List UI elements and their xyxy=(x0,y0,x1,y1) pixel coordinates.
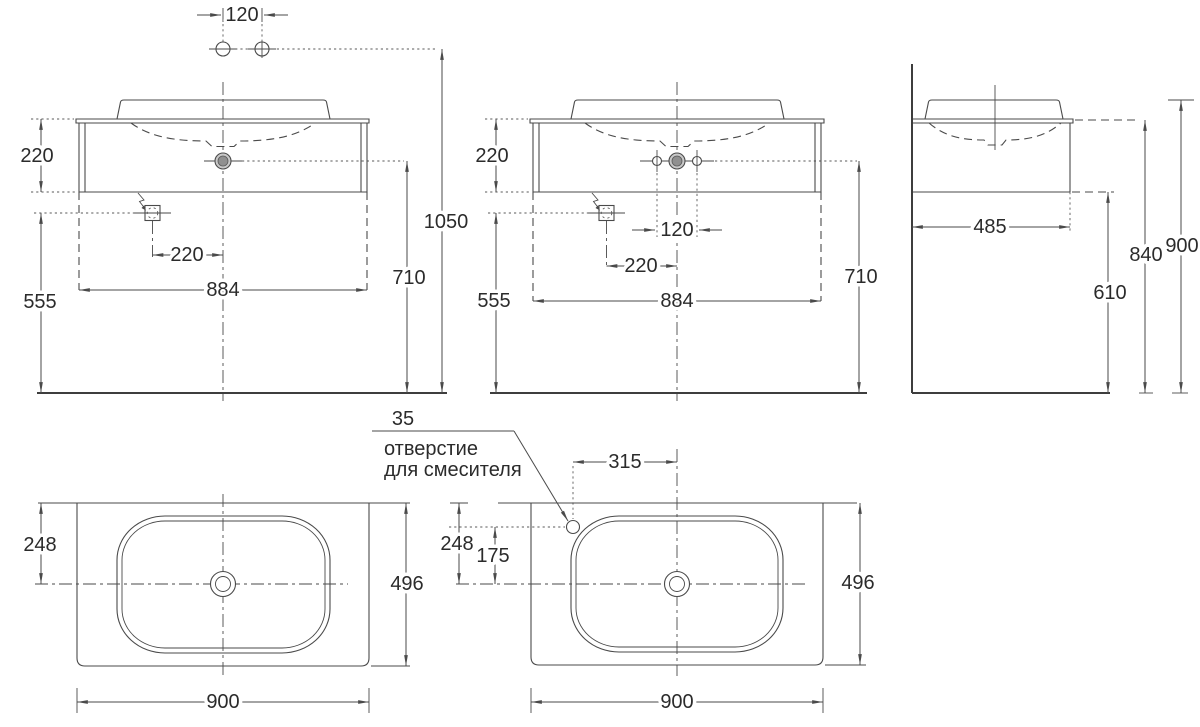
dim-depth: 496 xyxy=(390,573,423,595)
dim-underside-height: 610 xyxy=(1093,282,1126,304)
dim-faucet-setback: 175 xyxy=(476,545,509,567)
dim-outlet-to-floor: 555 xyxy=(477,290,510,312)
dim-width: 900 xyxy=(206,691,239,713)
dim-worktop-height: 840 xyxy=(1129,244,1162,266)
dim-faucet-hole-diameter: 35 xyxy=(392,408,414,430)
leader-arrow xyxy=(514,431,568,521)
front-view-left: 120 220 555 220 884 710 1050 xyxy=(20,4,468,401)
technical-drawing-canvas: 120 220 555 220 884 710 1050 xyxy=(0,0,1200,727)
plan-view-right: 35 отверстие для смесителя 315 248 175 4… xyxy=(372,408,875,713)
faucet-hole-note-line2: для смесителя xyxy=(384,459,522,481)
dim-drain-height: 710 xyxy=(392,267,425,289)
electrical-outlet-symbol xyxy=(588,193,625,221)
front-view-center: 220 555 120 220 884 710 xyxy=(475,82,877,401)
dim-faucet-offset: 315 xyxy=(608,451,641,473)
dim-overall-height: 900 xyxy=(1165,235,1198,257)
dim-outlet-offset: 220 xyxy=(624,255,657,277)
dim-drain-setback: 248 xyxy=(23,534,56,556)
faucet-hole xyxy=(567,521,580,534)
dim-width: 900 xyxy=(660,691,693,713)
faucet-hole-note-line1: отверстие xyxy=(384,438,478,460)
dim-outlet-offset: 220 xyxy=(170,244,203,266)
dim-worktop-height: 220 xyxy=(20,145,53,167)
dim-worktop-height: 220 xyxy=(475,145,508,167)
dim-body-width: 884 xyxy=(206,279,239,301)
dim-depth: 496 xyxy=(841,572,874,594)
dim-supply-hole-spacing: 120 xyxy=(225,4,258,26)
lightning-bolt-icon xyxy=(592,193,599,208)
dim-outlet-to-floor: 555 xyxy=(23,291,56,313)
electrical-outlet-symbol xyxy=(134,193,171,221)
lightning-bolt-icon xyxy=(138,193,145,208)
dim-depth: 485 xyxy=(973,216,1006,238)
side-view: 485 610 840 900 xyxy=(912,64,1199,393)
dim-fixing-hole-spacing: 120 xyxy=(660,219,693,241)
vanity-dimension-drawing: 120 220 555 220 884 710 1050 xyxy=(0,0,1200,727)
dim-drain-height: 710 xyxy=(844,266,877,288)
dim-supply-height: 1050 xyxy=(424,211,469,233)
dim-body-width: 884 xyxy=(660,290,693,312)
plan-view-left: 248 496 900 xyxy=(23,494,423,713)
dim-drain-setback: 248 xyxy=(440,533,473,555)
